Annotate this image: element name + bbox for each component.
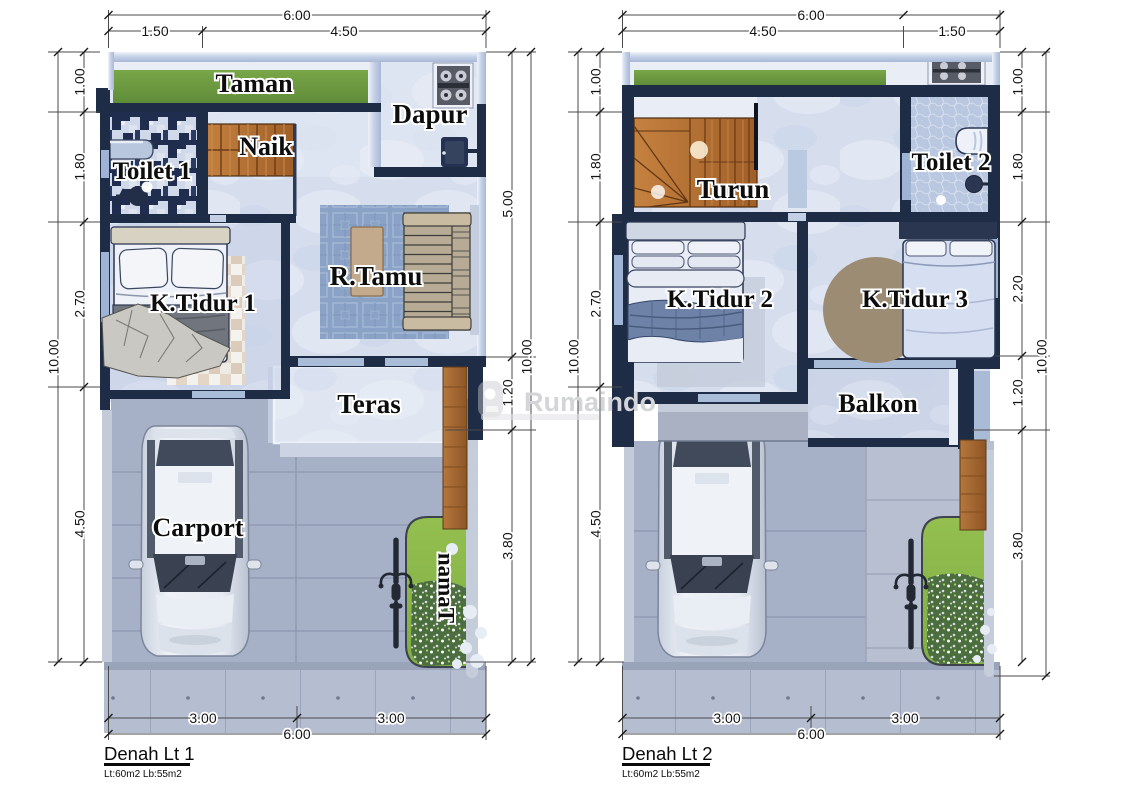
svg-text:1.00: 1.00 [588,68,604,95]
svg-text:10.00: 10.00 [1034,339,1050,374]
svg-text:Teras: Teras [337,389,401,419]
svg-text:Naik: Naik [239,132,293,161]
svg-text:4.50: 4.50 [588,510,604,537]
svg-text:1.00: 1.00 [72,68,88,95]
svg-text:Turun: Turun [697,174,770,204]
svg-text:3.00: 3.00 [189,710,216,726]
svg-text:Carport: Carport [153,513,244,542]
svg-text:3.00: 3.00 [713,710,740,726]
svg-text:6.00: 6.00 [797,7,824,23]
svg-text:1.50: 1.50 [938,23,965,39]
svg-text:6.00: 6.00 [283,726,310,742]
svg-text:K.Tidur 3: K.Tidur 3 [862,286,968,313]
svg-text:2.70: 2.70 [588,290,604,317]
svg-text:3.80: 3.80 [1010,532,1026,559]
svg-text:namaT: namaT [434,553,459,623]
svg-text:Rumaindo: Rumaindo [524,387,656,417]
svg-text:1.80: 1.80 [588,153,604,180]
svg-text:K.Tidur 1: K.Tidur 1 [150,290,256,317]
svg-text:3.80: 3.80 [500,532,516,559]
svg-text:Toilet 1: Toilet 1 [113,158,192,185]
svg-text:Taman: Taman [215,69,293,98]
svg-text:10.00: 10.00 [566,339,582,374]
svg-text:1.50: 1.50 [141,23,168,39]
svg-text:10.00: 10.00 [519,339,535,374]
svg-text:1.80: 1.80 [72,153,88,180]
svg-text:4.50: 4.50 [330,23,357,39]
svg-text:4.50: 4.50 [749,23,776,39]
svg-text:1.20: 1.20 [1010,379,1026,406]
svg-text:3.00: 3.00 [891,710,918,726]
svg-text:K.Tidur 2: K.Tidur 2 [667,286,773,313]
svg-text:Lt:60m2 Lb:55m2: Lt:60m2 Lb:55m2 [104,769,182,780]
svg-text:5.00: 5.00 [500,190,516,217]
svg-text:Balkon: Balkon [838,389,918,418]
svg-text:Toilet 2: Toilet 2 [912,149,991,176]
svg-text:Denah Lt 2: Denah Lt 2 [622,743,713,764]
svg-text:2.70: 2.70 [72,290,88,317]
svg-text:2.20: 2.20 [1010,275,1026,302]
svg-text:4.50: 4.50 [72,510,88,537]
svg-text:Dapur: Dapur [392,99,467,129]
svg-text:3.00: 3.00 [377,710,404,726]
svg-text:Denah Lt 1: Denah Lt 1 [104,743,195,764]
svg-text:6.00: 6.00 [283,7,310,23]
svg-text:Lt:60m2 Lb:55m2: Lt:60m2 Lb:55m2 [622,769,700,780]
svg-text:R.Tamu: R.Tamu [330,261,423,291]
svg-text:1.80: 1.80 [1010,153,1026,180]
svg-text:6.00: 6.00 [797,726,824,742]
svg-text:10.00: 10.00 [46,339,62,374]
svg-text:1.00: 1.00 [1010,68,1026,95]
